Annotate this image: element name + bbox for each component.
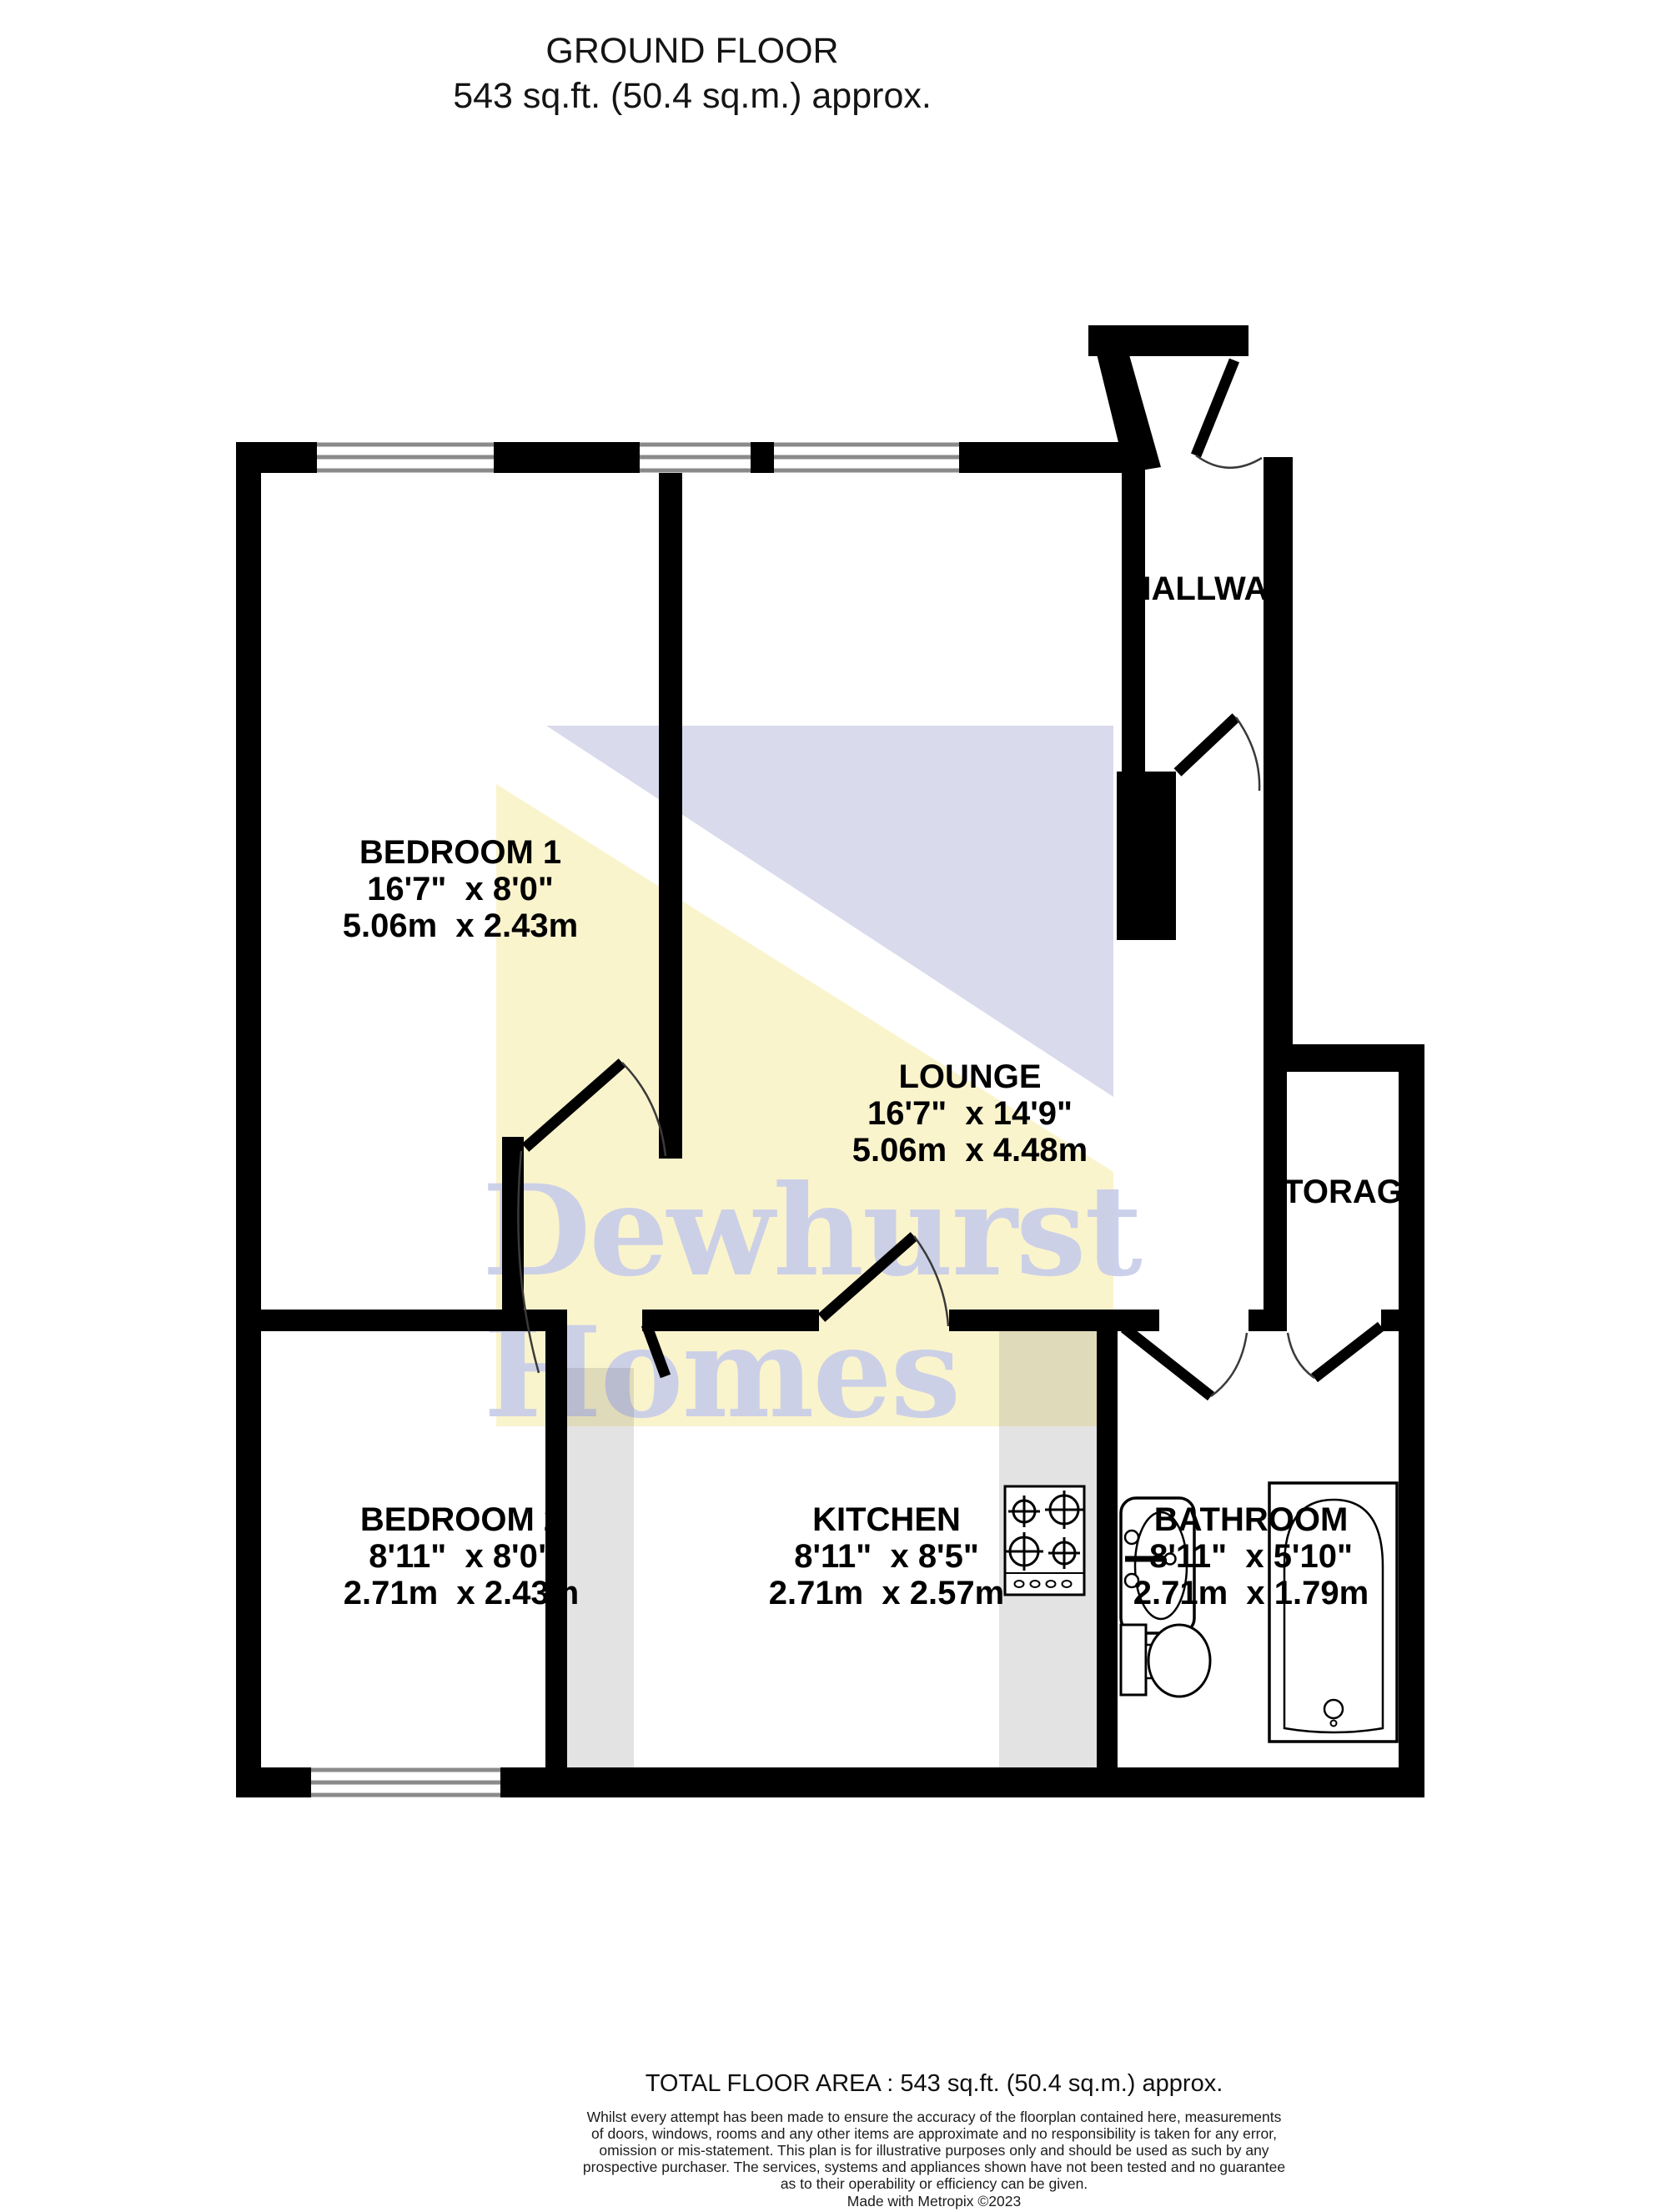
room-label-lounge: LOUNGE 16'7" x 14'9" 5.06m x 4.48m: [720, 1058, 1220, 1169]
wall: [236, 442, 317, 473]
page-title: GROUND FLOOR 543 sq.ft. (50.4 sq.m.) app…: [317, 28, 1068, 118]
page-title-line2: 543 sq.ft. (50.4 sq.m.) approx.: [317, 73, 1068, 118]
window-lounge-right: [774, 442, 959, 473]
page-title-line1: GROUND FLOOR: [317, 28, 1068, 73]
wall: [236, 1767, 311, 1797]
window-bedroom2: [311, 1767, 500, 1797]
room-dims-imperial: 16'7" x 8'0": [210, 871, 711, 907]
room-dims-metric: 5.06m x 2.43m: [210, 907, 711, 944]
wall: [494, 442, 640, 473]
wall: [1381, 1310, 1424, 1331]
watermark-text-line1: Dewhurst: [482, 1158, 1142, 1305]
room-name: LOUNGE: [720, 1058, 1220, 1095]
room-name: BEDROOM 1: [210, 834, 711, 871]
credit-text: Made with Metropix ©2023: [467, 2193, 1401, 2210]
room-dims-metric: 2.71m x 1.79m: [1001, 1575, 1501, 1611]
wall: [751, 442, 774, 473]
room-name: BATHROOM: [1001, 1501, 1501, 1538]
floorplan-page: Dewhurst Homes: [0, 0, 1668, 2212]
wall: [959, 442, 1128, 473]
wall-chimney-mass: [1117, 772, 1176, 940]
room-label-storage: STORAGE: [1264, 1173, 1421, 1211]
wall: [1264, 457, 1293, 1072]
room-dims-metric: 5.06m x 4.48m: [720, 1132, 1220, 1169]
room-label-bedroom1: BEDROOM 1 16'7" x 8'0" 5.06m x 2.43m: [210, 834, 711, 944]
room-name: HALLWAY: [1128, 571, 1288, 608]
window-lounge-left: [640, 442, 751, 473]
window-bedroom1: [317, 442, 494, 473]
room-dims-imperial: 8'11" x 5'10": [1001, 1538, 1501, 1575]
wall: [236, 1310, 567, 1331]
disclaimer-text: Whilst every attempt has been made to en…: [467, 2109, 1401, 2192]
room-label-bathroom: BATHROOM 8'11" x 5'10" 2.71m x 1.79m: [1001, 1501, 1501, 1611]
wall: [1264, 1044, 1424, 1072]
room-dims-imperial: 16'7" x 14'9": [720, 1095, 1220, 1132]
room-name: STORAGE: [1264, 1174, 1421, 1211]
wall: [500, 1767, 1424, 1797]
toilet-icon: [1121, 1625, 1210, 1697]
room-label-hallway: HALLWAY: [1123, 570, 1292, 608]
wall: [659, 473, 682, 1159]
wall: [642, 1310, 819, 1331]
wall: [1122, 467, 1145, 772]
total-floor-area: TOTAL FLOOR AREA : 543 sq.ft. (50.4 sq.m…: [517, 2070, 1351, 2098]
